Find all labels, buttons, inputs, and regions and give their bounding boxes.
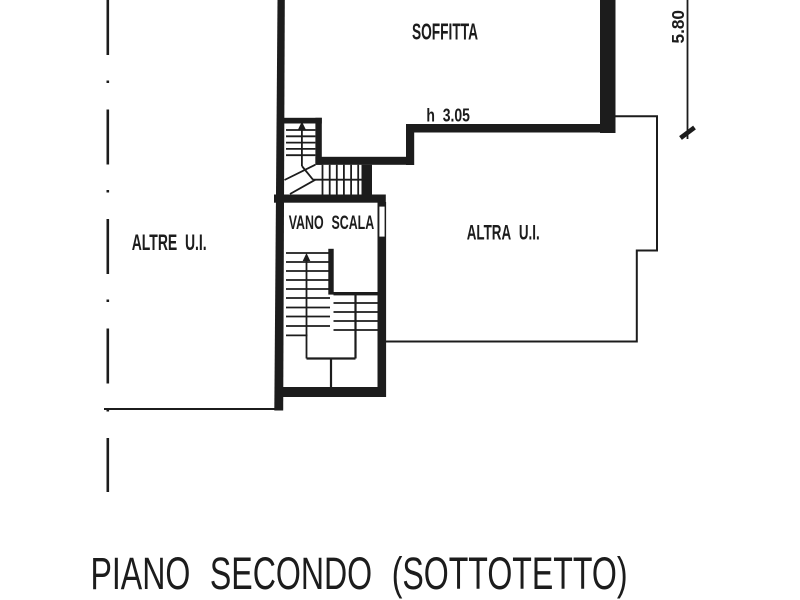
svg-text:SOFFITTA: SOFFITTA (412, 19, 478, 45)
svg-text:5.80: 5.80 (668, 10, 688, 44)
svg-text:ALTRA U.I.: ALTRA U.I. (467, 222, 540, 245)
svg-text:VANO SCALA: VANO SCALA (289, 212, 375, 234)
svg-text:PIANO SECONDO (SOTTOTETTO): PIANO SECONDO (SOTTOTETTO) (91, 548, 628, 599)
svg-text:ALTRE U.I.: ALTRE U.I. (132, 230, 207, 255)
svg-text:h 3.05: h 3.05 (426, 106, 470, 126)
